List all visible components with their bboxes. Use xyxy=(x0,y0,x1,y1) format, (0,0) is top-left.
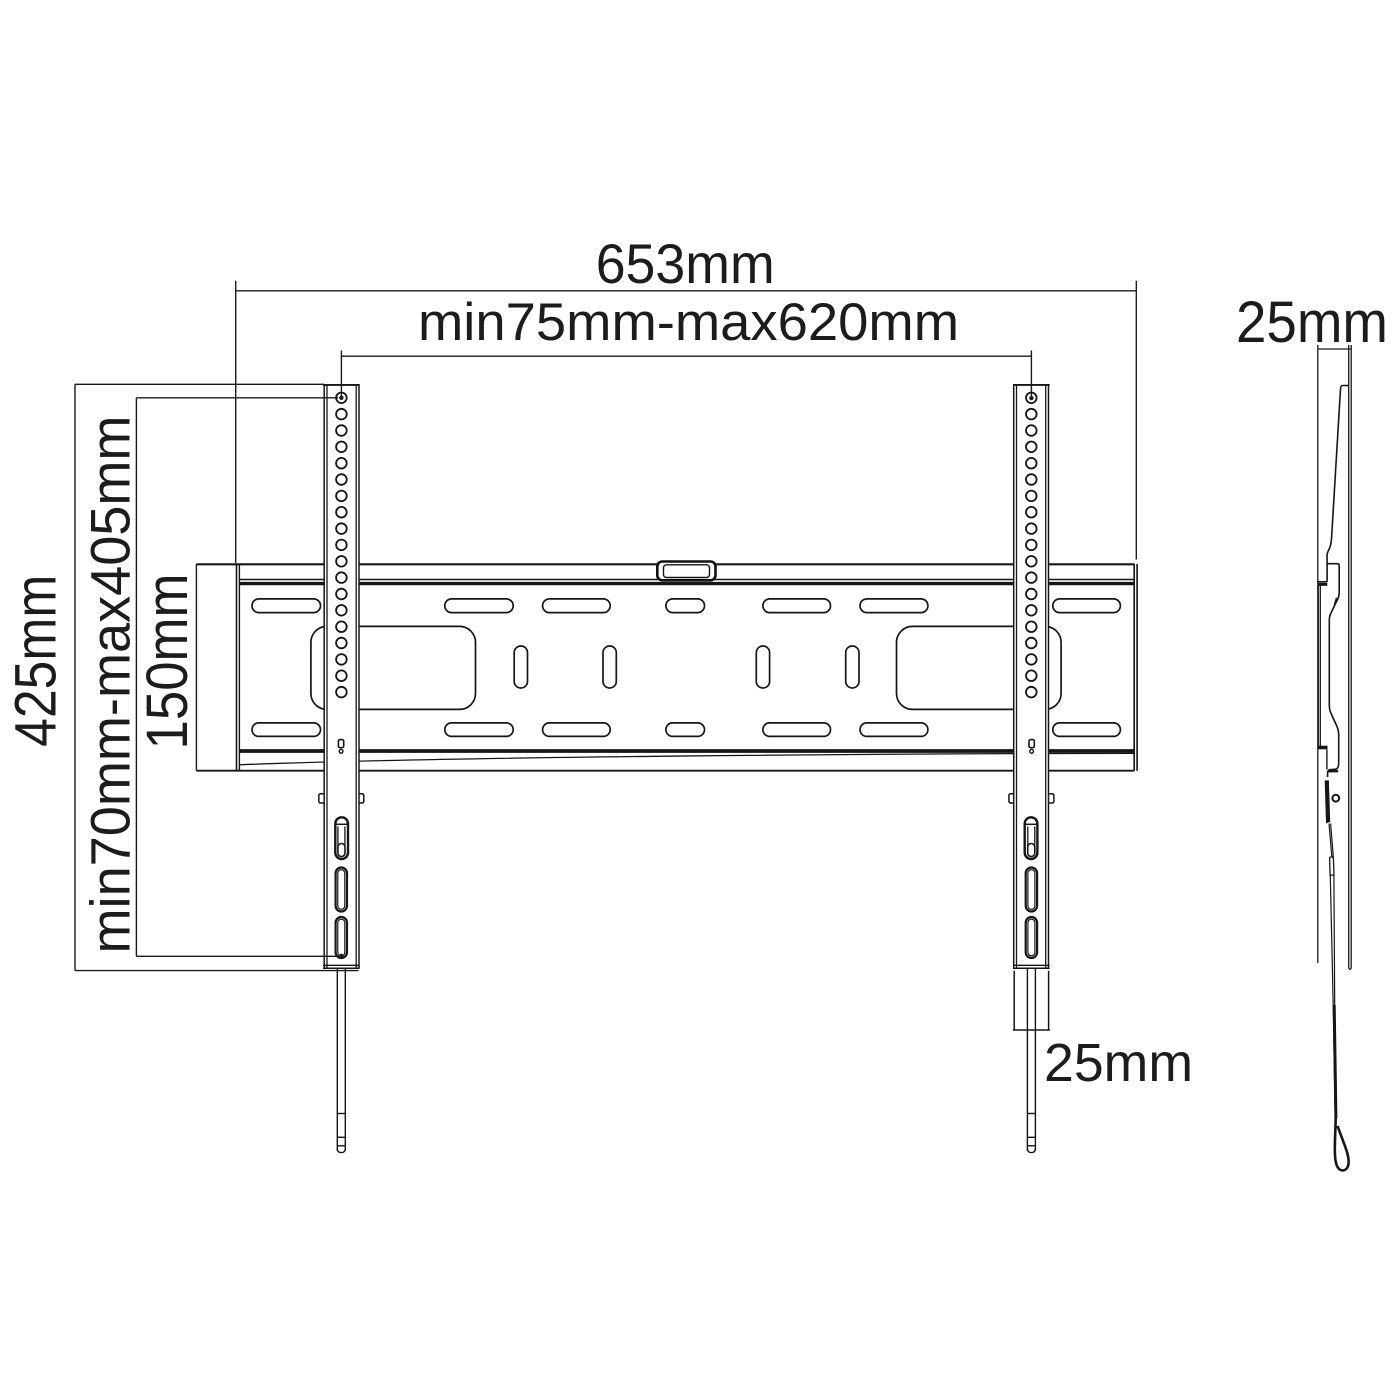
svg-text:min70mm-max405mm: min70mm-max405mm xyxy=(79,416,142,954)
svg-text:25mm: 25mm xyxy=(1044,1033,1193,1093)
svg-text:25mm: 25mm xyxy=(1236,290,1388,355)
svg-text:150mm: 150mm xyxy=(135,574,200,750)
svg-text:425mm: 425mm xyxy=(4,575,69,747)
svg-text:min75mm-max620mm: min75mm-max620mm xyxy=(418,293,959,352)
svg-text:653mm: 653mm xyxy=(596,232,775,295)
